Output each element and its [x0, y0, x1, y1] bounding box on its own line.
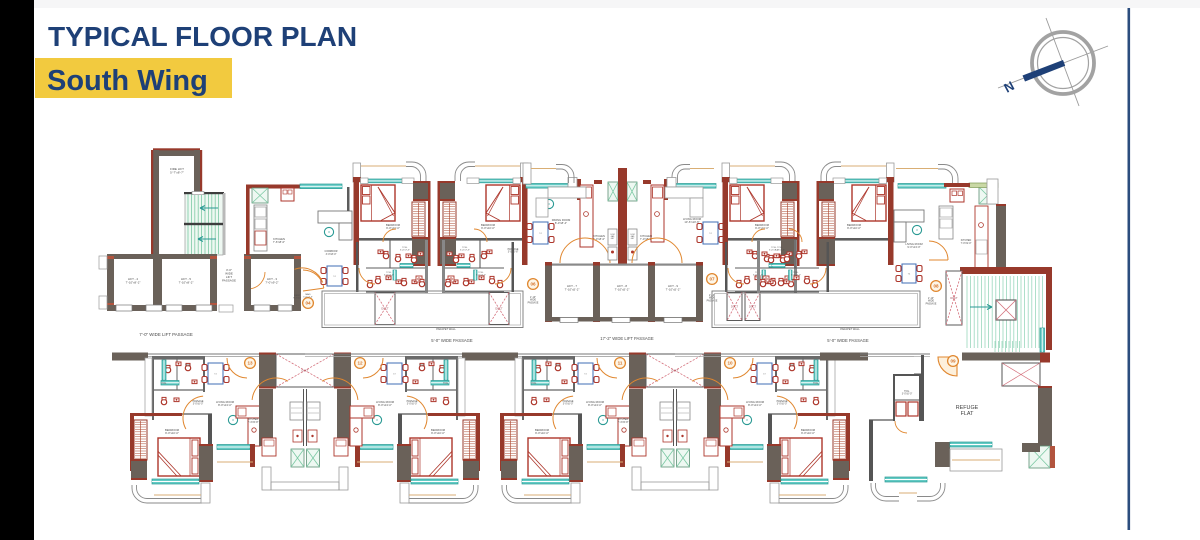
svg-text:BEDROOM9’-0"x10’-0": BEDROOM9’-0"x10’-0": [847, 223, 862, 230]
svg-text:LIVING ROOM9’-0"x13’-0": LIVING ROOM9’-0"x13’-0": [905, 242, 922, 249]
svg-text:TOIL.: TOIL.: [419, 365, 425, 367]
svg-text:TYPICAL FLOOR PLAN: TYPICAL FLOOR PLAN: [48, 21, 357, 52]
svg-text:PARAPET WALL: PARAPET WALL: [436, 327, 456, 331]
svg-text:BEDROOM9’-0"x10’-0": BEDROOM9’-0"x10’-0": [165, 428, 180, 435]
svg-text:DUCT: DUCT: [381, 307, 389, 311]
svg-text:DUCT: DUCT: [671, 369, 679, 373]
svg-text:DUCT: DUCT: [749, 305, 757, 309]
svg-text:11: 11: [618, 361, 623, 366]
svg-text:O: O: [916, 229, 918, 232]
svg-text:TOIL.: TOIL.: [789, 365, 795, 367]
svg-text:TOIL.: TOIL.: [185, 365, 191, 367]
svg-text:KITCHEN7’-4"x5’-8": KITCHEN7’-4"x5’-8": [618, 418, 629, 424]
svg-text:TOIL.: TOIL.: [813, 383, 819, 385]
svg-text:DUCT: DUCT: [301, 369, 309, 373]
svg-text:5’-0" WIDE PASSAGE: 5’-0" WIDE PASSAGE: [827, 338, 869, 343]
svg-text:BEDROOM9’-0"x10’-0": BEDROOM9’-0"x10’-0": [535, 428, 550, 435]
svg-text:O: O: [376, 419, 378, 422]
svg-text:KITCHEN7’-6"x8’-0": KITCHEN7’-6"x8’-0": [273, 237, 285, 244]
svg-text:PASSAGE3’-0"x5’-0": PASSAGE3’-0"x5’-0": [563, 400, 574, 406]
svg-text:17’-2" WIDE LIFT PASSAGE: 17’-2" WIDE LIFT PASSAGE: [600, 336, 654, 341]
svg-text:7’-0" WIDE LIFT PASSAGE: 7’-0" WIDE LIFT PASSAGE: [139, 332, 193, 337]
svg-text:10: 10: [727, 361, 733, 366]
svg-text:KITCHEN7’-4"x5’-8": KITCHEN7’-4"x5’-8": [248, 418, 259, 424]
svg-text:TOIL.: TOIL.: [531, 383, 537, 385]
svg-text:04: 04: [305, 301, 311, 306]
svg-text:O: O: [232, 419, 234, 422]
svg-text:DUCT: DUCT: [950, 296, 958, 300]
svg-text:O: O: [328, 231, 330, 234]
svg-text:O: O: [602, 419, 604, 422]
svg-text:PARAPET WALL: PARAPET WALL: [840, 327, 860, 331]
svg-text:TOIL.: TOIL.: [555, 365, 561, 367]
svg-text:09: 09: [950, 359, 956, 364]
svg-text:PASSAGE3’-0"x5’-0": PASSAGE3’-0"x5’-0": [777, 400, 788, 406]
svg-text:06: 06: [530, 282, 536, 287]
svg-text:07: 07: [709, 277, 715, 282]
svg-text:BEDROOM9’-0"x10’-0": BEDROOM9’-0"x10’-0": [481, 223, 496, 230]
svg-text:TOIL.: TOIL.: [161, 383, 167, 385]
svg-text:08: 08: [933, 284, 939, 289]
svg-text:DUCT: DUCT: [731, 305, 739, 309]
svg-text:TOIL.: TOIL.: [443, 383, 449, 385]
svg-text:5’-0" WIDE PASSAGE: 5’-0" WIDE PASSAGE: [431, 338, 473, 343]
svg-text:KITCHEN7’-0"x9’-0": KITCHEN7’-0"x9’-0": [961, 239, 972, 245]
svg-text:12: 12: [357, 361, 363, 366]
svg-text:South Wing: South Wing: [47, 65, 208, 97]
svg-text:DUCT: DUCT: [495, 307, 503, 311]
svg-text:13: 13: [247, 361, 253, 366]
svg-text:O: O: [746, 419, 748, 422]
svg-text:PASSAGE3’-0"x5’-0": PASSAGE3’-0"x5’-0": [407, 400, 418, 406]
svg-text:BEDROOM9’-0"x10’-0": BEDROOM9’-0"x10’-0": [431, 428, 446, 435]
svg-text:PASSAGE3’-0"x5’-0": PASSAGE3’-0"x5’-0": [193, 400, 204, 406]
svg-text:CORRIDOR3’-0"x8’-0": CORRIDOR3’-0"x8’-0": [324, 250, 337, 256]
svg-text:BEDROOM9’-0"x10’-0": BEDROOM9’-0"x10’-0": [801, 428, 816, 435]
svg-text:FIRE LIFT5’-7"x8’-7": FIRE LIFT5’-7"x8’-7": [170, 167, 184, 174]
svg-text:LIFT - 37’-0"x9’-2": LIFT - 37’-0"x9’-2": [265, 277, 278, 284]
